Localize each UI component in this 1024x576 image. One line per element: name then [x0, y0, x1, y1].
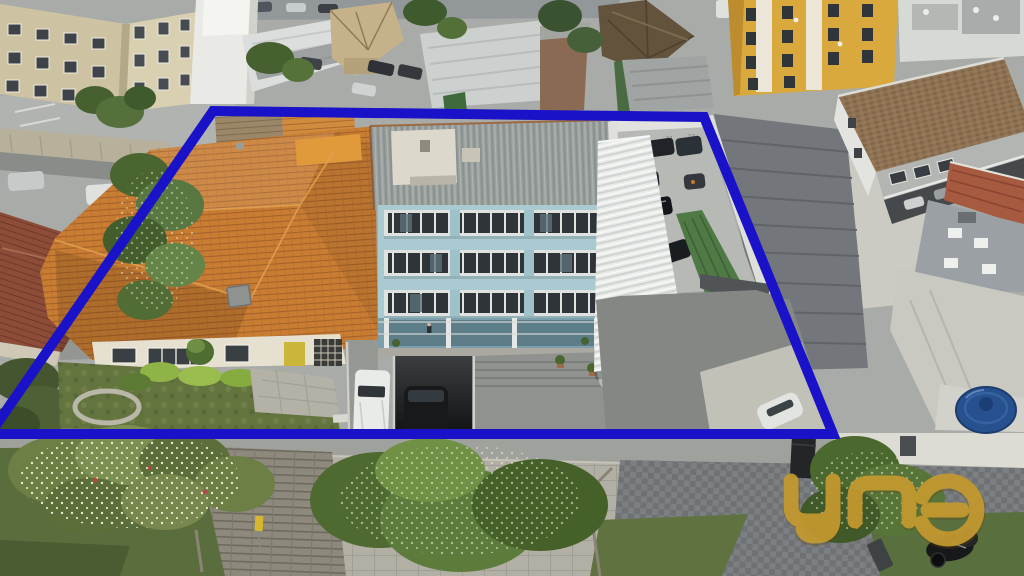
center-grass	[590, 514, 748, 576]
window-band-1	[384, 210, 602, 239]
entrance-ramp	[472, 352, 606, 432]
aerial-photo: 10 11 12	[0, 0, 1024, 576]
chimney	[227, 285, 252, 308]
small-garden-tree	[186, 339, 214, 365]
window-band-3	[384, 290, 602, 319]
window-band-2	[384, 250, 602, 279]
aerial-photo-canvas: 10 11 12	[0, 0, 1024, 576]
white-industrial-building	[898, 0, 1024, 62]
ground-walkway	[378, 318, 606, 350]
warehouse-roof	[420, 20, 548, 114]
yellow-apartment-building	[728, 0, 898, 96]
teal-apartment-building	[370, 120, 614, 444]
yellow-door	[284, 342, 305, 366]
shed-roof	[614, 56, 714, 113]
